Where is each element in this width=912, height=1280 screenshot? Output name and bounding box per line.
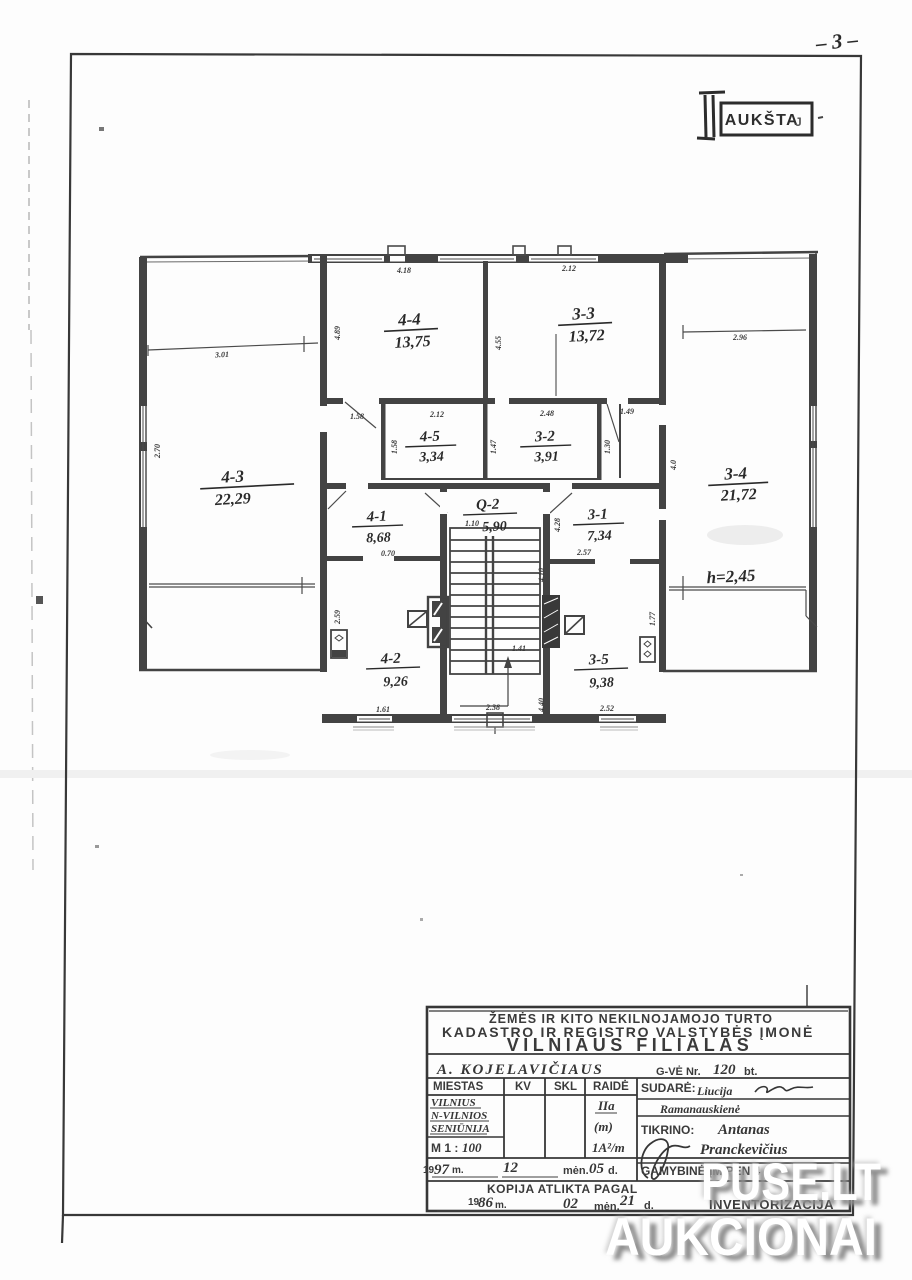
svg-text:Antanas: Antanas <box>717 1122 770 1138</box>
svg-text:4-3: 4-3 <box>220 467 245 487</box>
svg-text:1.58: 1.58 <box>350 412 364 421</box>
svg-text:A. KOJELAVIČIAUS: A. KOJELAVIČIAUS <box>436 1061 604 1078</box>
svg-text:(m): (m) <box>594 1119 613 1134</box>
svg-text:2.12: 2.12 <box>561 264 576 273</box>
svg-text:N-VILNIOS: N-VILNIOS <box>430 1110 487 1122</box>
svg-text:2.70: 2.70 <box>153 444 162 459</box>
svg-text:120: 120 <box>713 1062 736 1078</box>
svg-text:3,34: 3,34 <box>418 450 444 466</box>
svg-text:AUKŠTA: AUKŠTA <box>725 110 799 129</box>
svg-text:4-4: 4-4 <box>397 309 422 329</box>
svg-text:21,72: 21,72 <box>719 486 757 505</box>
svg-text:2.12: 2.12 <box>429 410 444 419</box>
svg-text:2.57: 2.57 <box>576 548 592 557</box>
svg-text:KOPIJA ATLIKTA PAGAL: KOPIJA ATLIKTA PAGAL <box>487 1182 638 1196</box>
svg-text:13,72: 13,72 <box>568 327 605 346</box>
svg-text:SKL: SKL <box>554 1081 577 1093</box>
svg-text:1.10: 1.10 <box>465 519 479 528</box>
svg-text:2.59: 2.59 <box>333 610 342 625</box>
svg-text:3.01: 3.01 <box>214 350 229 360</box>
svg-text:4-1: 4-1 <box>365 509 387 526</box>
svg-text:1.41: 1.41 <box>512 644 526 653</box>
svg-text:4.40: 4.40 <box>537 698 546 713</box>
svg-text:3-4: 3-4 <box>723 463 748 483</box>
svg-text:4.28: 4.28 <box>553 518 562 533</box>
svg-text:3-1: 3-1 <box>586 507 608 524</box>
svg-text:7,34: 7,34 <box>587 529 612 545</box>
svg-text:4-5: 4-5 <box>419 429 441 446</box>
svg-text:J: J <box>795 115 802 129</box>
svg-text:KV: KV <box>515 1081 531 1093</box>
svg-text:VILNIAUS FILIALAS: VILNIAUS FILIALAS <box>507 1035 754 1055</box>
svg-text:m.: m. <box>495 1200 507 1211</box>
svg-text:2.96: 2.96 <box>732 333 747 342</box>
svg-text:3-2: 3-2 <box>534 429 556 446</box>
svg-text:8,68: 8,68 <box>366 531 391 547</box>
svg-text:1.49: 1.49 <box>620 407 634 416</box>
svg-text:100: 100 <box>462 1140 482 1155</box>
svg-text:SUDARĖ:: SUDARĖ: <box>641 1080 696 1095</box>
svg-text:02: 02 <box>563 1196 579 1212</box>
svg-text:– 3 –: – 3 – <box>814 27 860 55</box>
svg-text:3-3: 3-3 <box>571 303 596 323</box>
svg-text:RAIDĖ: RAIDĖ <box>593 1080 629 1093</box>
svg-text:M 1 :: M 1 : <box>431 1141 458 1155</box>
svg-text:TIKRINO:: TIKRINO: <box>641 1123 694 1137</box>
svg-text:4.18: 4.18 <box>396 266 411 275</box>
svg-text:2.48: 2.48 <box>539 409 554 418</box>
svg-text:0.70: 0.70 <box>381 549 395 558</box>
svg-text:4.89: 4.89 <box>333 326 342 341</box>
svg-text:2.38: 2.38 <box>485 703 500 712</box>
svg-text:12: 12 <box>503 1160 519 1176</box>
svg-text:SENIŪNIJA: SENIŪNIJA <box>431 1123 490 1135</box>
svg-text:9,26: 9,26 <box>383 674 408 690</box>
svg-text:1.77: 1.77 <box>648 611 657 626</box>
svg-text:4.0: 4.0 <box>669 460 678 471</box>
svg-text:MIESTAS: MIESTAS <box>433 1081 484 1093</box>
svg-text:m.: m. <box>452 1165 464 1176</box>
svg-text:13,75: 13,75 <box>394 333 431 352</box>
svg-text:Liucija: Liucija <box>696 1084 732 1098</box>
svg-text:3,91: 3,91 <box>533 450 559 466</box>
svg-text:1A²/m: 1A²/m <box>592 1140 625 1155</box>
svg-text:Q-2: Q-2 <box>476 497 500 514</box>
svg-text:1.61: 1.61 <box>376 705 390 714</box>
svg-text:G-VĖ Nr.: G-VĖ Nr. <box>656 1065 701 1078</box>
svg-text:2.52: 2.52 <box>599 704 614 713</box>
svg-text:VILNIUS: VILNIUS <box>431 1097 476 1109</box>
svg-text:3-5: 3-5 <box>587 652 609 669</box>
svg-text:PUSE.LT: PUSE.LT <box>701 1153 881 1212</box>
svg-text:mėn.: mėn. <box>563 1165 589 1177</box>
svg-text:9,38: 9,38 <box>589 676 614 692</box>
svg-text:4.10: 4.10 <box>537 568 546 583</box>
svg-text:h=2,45: h=2,45 <box>706 566 756 588</box>
svg-text:1.30: 1.30 <box>603 440 612 454</box>
svg-text:Ramanauskienė: Ramanauskienė <box>659 1102 741 1116</box>
svg-text:5,90: 5,90 <box>482 519 507 535</box>
svg-text:4-2: 4-2 <box>379 651 401 668</box>
svg-text:1.58: 1.58 <box>390 440 399 454</box>
svg-text:1.47: 1.47 <box>489 439 498 454</box>
svg-text:86: 86 <box>478 1195 494 1211</box>
svg-text:22,29: 22,29 <box>213 490 251 509</box>
svg-text:05: 05 <box>589 1161 605 1177</box>
svg-text:4.55: 4.55 <box>494 336 503 351</box>
svg-text:IIa: IIa <box>597 1098 615 1113</box>
svg-text:19: 19 <box>423 1165 435 1176</box>
svg-text:bt.: bt. <box>744 1066 757 1078</box>
svg-text:AUKCIONAI: AUKCIONAI <box>605 1208 877 1267</box>
svg-text:d.: d. <box>608 1165 618 1177</box>
svg-text:97: 97 <box>434 1162 450 1178</box>
